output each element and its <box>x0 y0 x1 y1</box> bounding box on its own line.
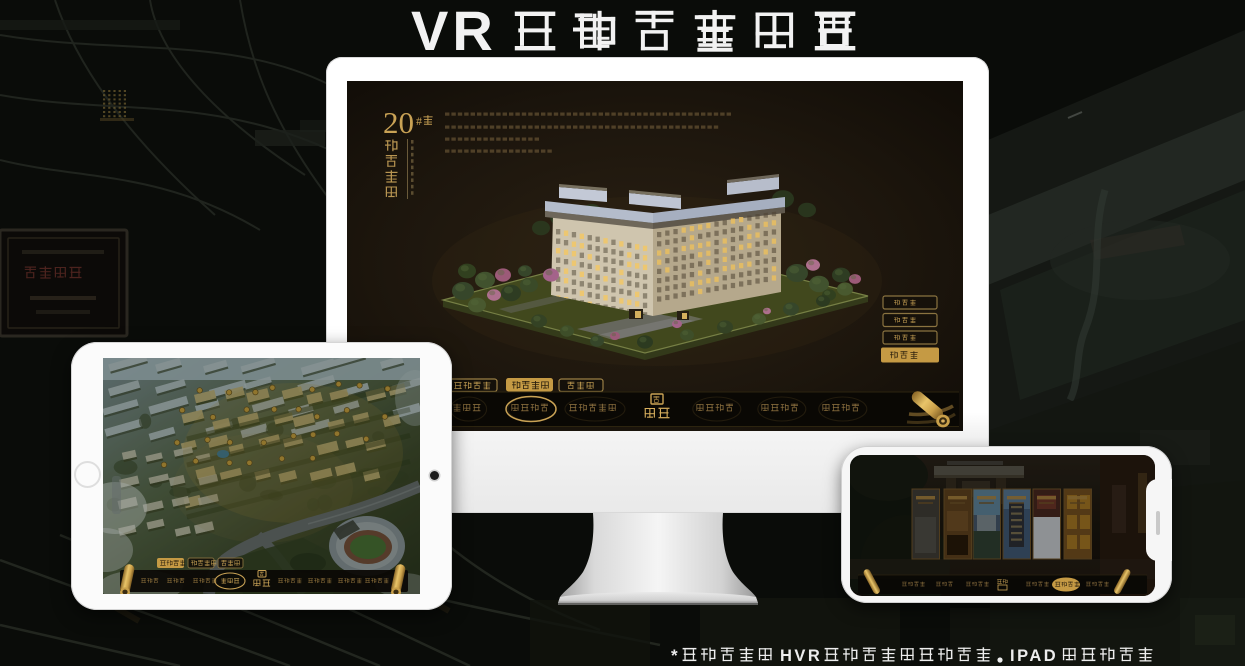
svg-text:HVR: HVR <box>780 647 822 665</box>
svg-text:*: * <box>671 646 678 665</box>
svg-text:IPAD: IPAD <box>1010 647 1058 665</box>
